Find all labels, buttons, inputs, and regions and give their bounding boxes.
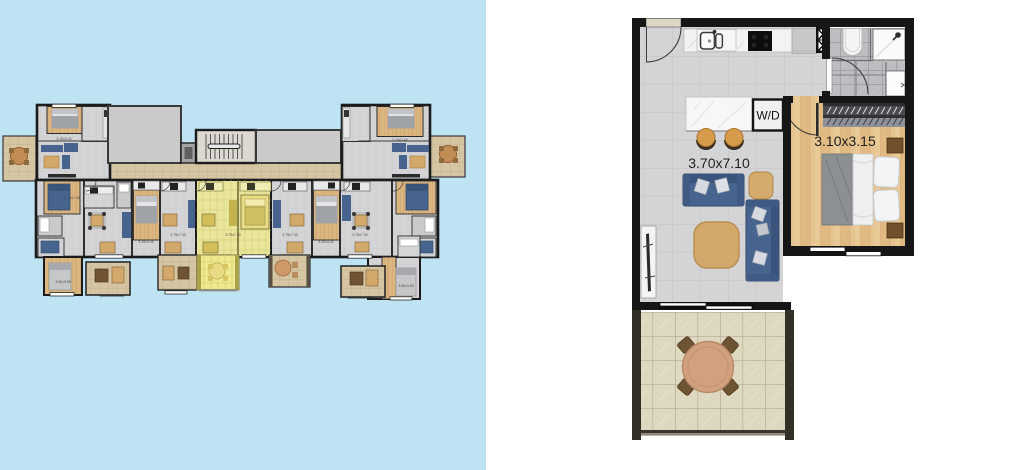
svg-text:3.10x3.15: 3.10x3.15 [814, 133, 876, 149]
svg-text:3.75x7.30: 3.75x7.30 [282, 233, 297, 237]
svg-text:3.75x7.30: 3.75x7.30 [64, 196, 79, 200]
svg-text:3.50x3.55: 3.50x3.55 [55, 280, 70, 284]
svg-text:W/D: W/D [756, 109, 780, 123]
svg-text:3.75x7.30: 3.75x7.30 [170, 233, 185, 237]
svg-text:3.75x7.30: 3.75x7.30 [225, 233, 240, 237]
svg-text:3.15x3.40: 3.15x3.40 [138, 240, 153, 244]
svg-text:3.15x3.40: 3.15x3.40 [56, 137, 71, 141]
svg-text:3.70x7.10: 3.70x7.10 [688, 155, 750, 171]
svg-text:3.50x3.55: 3.50x3.55 [398, 284, 413, 288]
svg-text:3.15x3.40: 3.15x3.40 [392, 138, 407, 142]
svg-text:3.75x7.30: 3.75x7.30 [352, 233, 367, 237]
svg-text:3.15x3.40: 3.15x3.40 [318, 240, 333, 244]
